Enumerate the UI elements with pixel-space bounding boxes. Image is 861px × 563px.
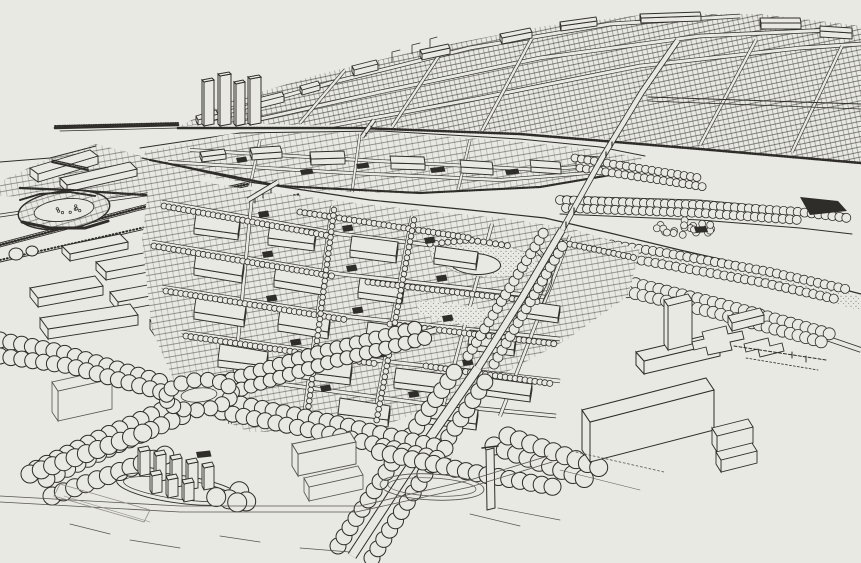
island-block [460,160,493,175]
island-block [530,160,561,174]
island-block [390,156,425,170]
skyline-block [760,18,801,29]
pylon [486,448,495,510]
city-aerial-drawing [0,0,861,563]
island-block [310,151,345,165]
skyline-block [640,12,701,23]
slab-tower [150,470,162,494]
gas-tank-2 [26,246,38,256]
island-block [250,146,282,160]
tower-2 [218,72,231,126]
tower-1 [202,78,214,126]
skyline-block [820,26,852,39]
gas-tank-1 [9,248,23,260]
thin-tower-slab [664,294,692,350]
slab-tower [166,474,178,498]
city-drawing-svg [0,0,861,563]
tower-3 [234,80,245,126]
slab-tower [138,446,150,476]
slab-tower [202,462,214,490]
tower-4 [248,75,261,125]
slab-tower [182,478,194,502]
islet-dark-tuft [694,226,708,233]
